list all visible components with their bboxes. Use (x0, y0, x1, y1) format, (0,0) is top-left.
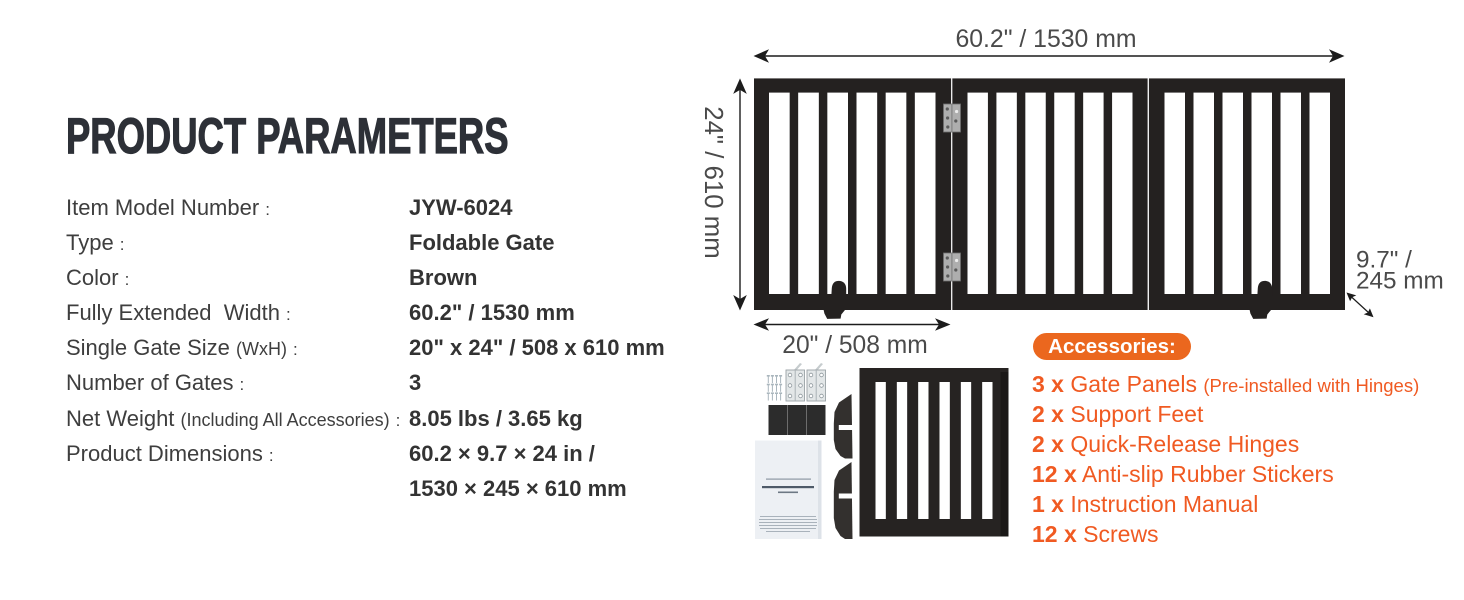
svg-text:60.2" / 1530 mm: 60.2" / 1530 mm (955, 26, 1136, 53)
svg-text:245 mm: 245 mm (1356, 268, 1444, 295)
svg-text:24" / 610 mm: 24" / 610 mm (699, 106, 727, 259)
svg-text:20" / 508 mm: 20" / 508 mm (782, 332, 927, 359)
